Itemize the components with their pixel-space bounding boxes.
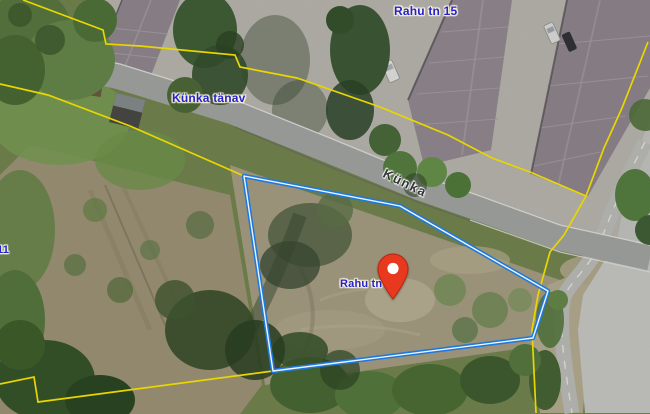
location-pin-icon[interactable] [377,253,409,301]
photo-grain-overlay [0,0,650,414]
map-label-left-edge-partial: 11 [0,245,9,256]
map-label-rahu-tn-15: Rahu tn 15 [394,5,457,17]
map-label-kunka-tanav: Künka tänav [172,92,246,104]
map-canvas[interactable]: Rahu tn 15 Künka tänav Künka Rahu tn 11 … [0,0,650,414]
aerial-imagery [0,0,650,414]
